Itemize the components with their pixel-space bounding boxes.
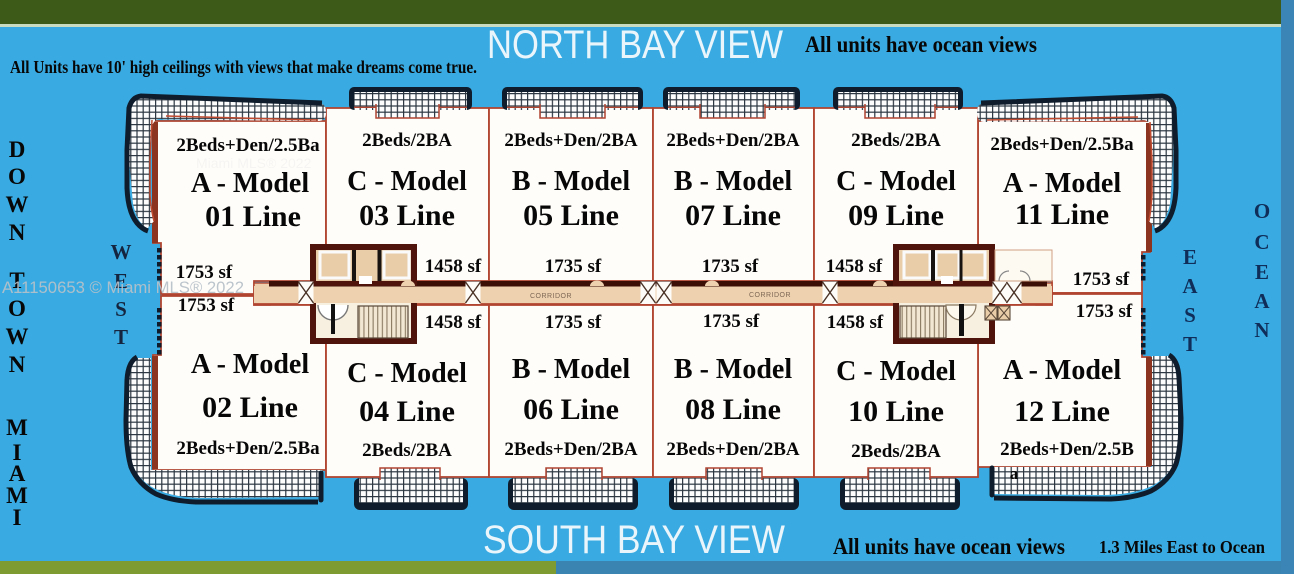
svg-text:2Beds+Den/2.5Ba: 2Beds+Den/2.5Ba bbox=[990, 134, 1134, 155]
svg-text:SOUTH BAY VIEW: SOUTH BAY VIEW bbox=[483, 518, 785, 562]
svg-text:W: W bbox=[6, 324, 29, 349]
svg-text:2Beds+Den/2.5B: 2Beds+Den/2.5B bbox=[1000, 439, 1134, 460]
svg-text:2Beds+Den/2.5Ba: 2Beds+Den/2.5Ba bbox=[176, 438, 320, 459]
svg-text:T: T bbox=[114, 325, 128, 349]
svg-text:01 Line: 01 Line bbox=[205, 200, 301, 233]
svg-text:1.3 Miles East to Ocean: 1.3 Miles East to Ocean bbox=[1099, 537, 1265, 557]
svg-text:C: C bbox=[1254, 230, 1269, 254]
svg-text:2Beds/2BA: 2Beds/2BA bbox=[362, 130, 452, 151]
svg-text:1735 sf: 1735 sf bbox=[703, 311, 760, 332]
svg-text:2Beds+Den/2BA: 2Beds+Den/2BA bbox=[666, 439, 800, 460]
svg-text:A11150653 © Miami MLS® 2022: A11150653 © Miami MLS® 2022 bbox=[2, 278, 244, 297]
svg-text:08 Line: 08 Line bbox=[685, 393, 781, 426]
svg-text:N: N bbox=[9, 352, 26, 377]
svg-text:11 Line: 11 Line bbox=[1015, 198, 1109, 231]
svg-text:C - Model: C - Model bbox=[836, 166, 956, 197]
svg-text:1753 sf: 1753 sf bbox=[1076, 301, 1133, 322]
svg-text:09 Line: 09 Line bbox=[848, 199, 944, 232]
svg-text:1735 sf: 1735 sf bbox=[545, 256, 602, 277]
svg-text:W: W bbox=[111, 240, 132, 264]
svg-text:1735 sf: 1735 sf bbox=[702, 256, 759, 277]
svg-text:10 Line: 10 Line bbox=[848, 395, 944, 428]
svg-text:1458 sf: 1458 sf bbox=[826, 256, 883, 277]
svg-text:M: M bbox=[6, 415, 28, 440]
svg-text:a: a bbox=[1010, 464, 1019, 483]
svg-text:C - Model: C - Model bbox=[347, 166, 467, 197]
svg-text:N: N bbox=[9, 220, 26, 245]
svg-text:CORRIDOR: CORRIDOR bbox=[749, 292, 791, 299]
svg-text:2Beds/2BA: 2Beds/2BA bbox=[362, 440, 452, 461]
svg-text:O: O bbox=[1254, 199, 1270, 223]
svg-text:A: A bbox=[1182, 274, 1198, 298]
svg-text:B - Model: B - Model bbox=[674, 354, 792, 385]
svg-text:1458 sf: 1458 sf bbox=[425, 312, 482, 333]
svg-text:2Beds/2BA: 2Beds/2BA bbox=[851, 441, 941, 462]
svg-text:02 Line: 02 Line bbox=[202, 391, 298, 424]
svg-text:1753 sf: 1753 sf bbox=[1073, 269, 1130, 290]
svg-text:2Beds/2BA: 2Beds/2BA bbox=[851, 130, 941, 151]
svg-text:A - Model: A - Model bbox=[1003, 355, 1121, 386]
svg-text:C - Model: C - Model bbox=[836, 356, 956, 387]
svg-text:B - Model: B - Model bbox=[512, 354, 630, 385]
svg-text:B - Model: B - Model bbox=[512, 166, 630, 197]
svg-text:N: N bbox=[1254, 318, 1269, 342]
svg-text:Miami MLS® 2022: Miami MLS® 2022 bbox=[196, 155, 312, 171]
svg-text:1753 sf: 1753 sf bbox=[178, 295, 235, 316]
svg-text:NORTH BAY VIEW: NORTH BAY VIEW bbox=[487, 23, 783, 67]
svg-text:W: W bbox=[6, 192, 29, 217]
svg-text:2Beds+Den/2.5Ba: 2Beds+Den/2.5Ba bbox=[176, 135, 320, 156]
svg-text:06 Line: 06 Line bbox=[523, 393, 619, 426]
svg-text:03 Line: 03 Line bbox=[359, 199, 455, 232]
svg-text:A - Model: A - Model bbox=[1003, 168, 1121, 199]
svg-text:S: S bbox=[115, 297, 127, 321]
svg-text:CORRIDOR: CORRIDOR bbox=[530, 293, 572, 300]
svg-text:D: D bbox=[9, 137, 26, 162]
svg-text:A - Model: A - Model bbox=[191, 168, 309, 199]
svg-text:12 Line: 12 Line bbox=[1014, 395, 1110, 428]
svg-text:E: E bbox=[1183, 245, 1197, 269]
svg-text:A - Model: A - Model bbox=[191, 349, 309, 380]
svg-text:All Units have 10' high ceilin: All Units have 10' high ceilings with vi… bbox=[10, 57, 477, 77]
svg-text:C - Model: C - Model bbox=[347, 358, 467, 389]
svg-text:S: S bbox=[1184, 303, 1196, 327]
svg-text:All units have ocean views: All units have ocean views bbox=[805, 32, 1037, 57]
svg-text:O: O bbox=[8, 296, 26, 321]
svg-text:2Beds+Den/2BA: 2Beds+Den/2BA bbox=[666, 130, 800, 151]
svg-text:1735 sf: 1735 sf bbox=[545, 312, 602, 333]
svg-text:A: A bbox=[1254, 289, 1270, 313]
svg-text:2Beds+Den/2BA: 2Beds+Den/2BA bbox=[504, 130, 638, 151]
svg-text:T: T bbox=[1183, 332, 1197, 356]
svg-text:2Beds+Den/2BA: 2Beds+Den/2BA bbox=[504, 439, 638, 460]
svg-text:05 Line: 05 Line bbox=[523, 199, 619, 232]
svg-text:1458 sf: 1458 sf bbox=[425, 256, 482, 277]
svg-text:O: O bbox=[8, 164, 26, 189]
svg-text:I: I bbox=[13, 505, 22, 530]
svg-text:E: E bbox=[1255, 260, 1269, 284]
svg-text:04 Line: 04 Line bbox=[359, 395, 455, 428]
svg-text:07 Line: 07 Line bbox=[685, 199, 781, 232]
svg-text:1458 sf: 1458 sf bbox=[827, 312, 884, 333]
svg-text:All units have ocean views: All units have ocean views bbox=[833, 534, 1065, 559]
svg-text:B - Model: B - Model bbox=[674, 166, 792, 197]
